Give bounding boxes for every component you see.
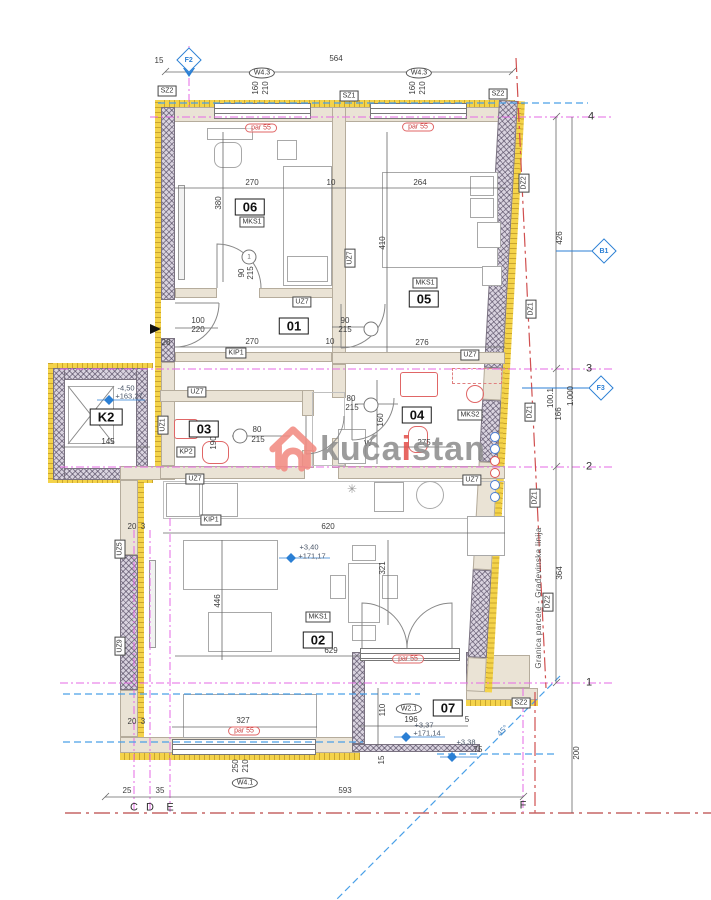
partition <box>175 288 217 298</box>
dimension-label: 629 <box>324 647 337 655</box>
elevator-car <box>68 386 114 444</box>
stove <box>467 516 505 556</box>
k2-wall-right <box>136 368 148 480</box>
room-number: 06 <box>235 199 265 216</box>
elevation-label: +171,17 <box>298 552 325 560</box>
section-marker: F2 <box>176 47 201 72</box>
nightstand-05 <box>477 222 501 248</box>
dimension-label: 220 <box>191 326 204 334</box>
window-tag: W2.1 <box>396 704 422 715</box>
wall-type-tag: MKS1 <box>412 278 437 289</box>
wall-type-tag: MKS1 <box>305 612 330 623</box>
pipe-riser <box>490 432 500 442</box>
door-number <box>364 398 379 413</box>
dimension-label: 90 <box>238 269 246 278</box>
room-number: 07 <box>433 700 463 717</box>
dimension-label: 196 <box>404 716 417 724</box>
insulation-left-lower <box>138 480 144 737</box>
room-number: 01 <box>279 318 309 335</box>
dimension-label: 5 <box>465 716 469 724</box>
window-tag: W4.1 <box>232 778 258 789</box>
dimension-label: 1.000 <box>567 386 575 406</box>
partition-03-top <box>160 390 305 402</box>
radiator-06 <box>178 185 185 280</box>
dimension-label: 200 <box>573 746 581 759</box>
wall-type-tag: SZ2 <box>489 89 508 100</box>
wall-type-tag: DZ1 <box>530 488 541 507</box>
elevation-label: -4,50 <box>117 384 134 392</box>
plan-text: Granica parcele - Građevinska linija <box>535 527 543 668</box>
partition-06-05 <box>332 107 346 354</box>
shower-04 <box>452 368 502 384</box>
plan-text: 45° <box>496 724 510 738</box>
window-top-left <box>214 103 311 119</box>
nightstand-06 <box>277 140 297 160</box>
parapet-label: par 55 <box>402 123 434 132</box>
elevation-label: +3,40 <box>300 543 319 551</box>
fridge <box>166 483 200 517</box>
dimension-label: 210 <box>262 81 270 94</box>
insulation-left2 <box>155 362 161 466</box>
kitchen-cabinet <box>202 483 238 517</box>
dimension-label: 620 <box>321 523 334 531</box>
pipe-riser <box>490 492 500 502</box>
pipe-riser <box>490 480 500 490</box>
pillow-05b <box>470 198 494 218</box>
dimension-label: 564 <box>329 55 342 63</box>
partition-living-top2 <box>338 466 505 479</box>
dimension-label: 446 <box>214 594 222 607</box>
wall-type-tag: MKS2 <box>457 410 482 421</box>
side-table-05 <box>482 266 502 286</box>
desk <box>207 128 253 140</box>
grid-axis-label: 2 <box>586 462 592 473</box>
window-tag: W4.3 <box>406 68 432 79</box>
window-bottom <box>172 739 316 755</box>
terrace-edge <box>352 744 480 752</box>
pillow-06 <box>287 256 328 282</box>
door-number: 1 <box>242 250 257 265</box>
room-number: 02 <box>303 632 333 649</box>
chair <box>214 142 242 168</box>
wall-type-tag: UZ7 <box>345 248 356 267</box>
wall-left-upper <box>161 107 175 300</box>
pipe-riser <box>490 468 500 478</box>
toilet-03 <box>202 441 229 464</box>
dimension-label: 270 <box>245 179 258 187</box>
dimension-label: 250 <box>232 759 240 772</box>
grid-axis-label: E <box>166 803 173 814</box>
dimension-label: 160 <box>409 81 417 94</box>
water-heater <box>466 385 484 403</box>
wall-type-tag: KP2 <box>176 447 195 458</box>
room-number: 05 <box>409 291 439 308</box>
window-top-right <box>370 103 467 119</box>
dimension-label: 276 <box>415 339 428 347</box>
grid-axis-label: 3 <box>586 364 592 375</box>
chair <box>382 575 398 599</box>
ottoman <box>208 612 272 652</box>
dimension-label: 35 <box>156 787 165 795</box>
pipe-riser <box>490 456 500 466</box>
dimension-label: 215 <box>247 266 255 279</box>
k2-wall-top <box>53 368 148 380</box>
room-number: 04 <box>402 407 432 424</box>
wall-type-tag: MKS1 <box>239 217 264 228</box>
radiator-living <box>149 560 156 648</box>
dimension-label: 593 <box>338 787 351 795</box>
sofa-bottom <box>183 694 317 738</box>
wall-type-tag: SZ2 <box>158 86 177 97</box>
wall-left-lower2 <box>120 555 138 690</box>
window-tag: W4.3 <box>249 68 275 79</box>
dimension-label: 215 <box>345 404 358 412</box>
dimension-label: 110 <box>379 704 387 717</box>
grid-axis-label: D <box>146 803 154 814</box>
wall-left-lower3 <box>120 690 138 737</box>
chair <box>352 545 376 561</box>
dimension-label: 364 <box>556 566 564 579</box>
section-marker: B1 <box>591 238 616 263</box>
dimension-label: 15 <box>155 57 164 65</box>
sofa <box>183 540 278 590</box>
insulation-bottom-right <box>466 700 538 706</box>
partition <box>259 288 333 298</box>
dimension-label: 166 <box>555 407 563 420</box>
chair <box>330 575 346 599</box>
wall-type-tag: DZ2 <box>543 592 554 611</box>
dishwasher <box>374 482 404 512</box>
dimension-label: 321 <box>379 561 387 574</box>
partition-hall <box>175 352 332 362</box>
chair <box>352 625 376 641</box>
dimension-label: 210 <box>419 81 427 94</box>
partition-05-04 <box>332 352 505 364</box>
terrace-wall-left <box>352 652 365 744</box>
grid-axis-label: F <box>520 801 527 812</box>
wall-left-upper2 <box>161 338 175 362</box>
dimension-label: 15 <box>378 756 386 765</box>
dimension-label: 80 <box>347 395 356 403</box>
dimension-label: 215 <box>251 436 264 444</box>
dimension-label: 426 <box>556 231 564 244</box>
wall-type-tag: UZ7 <box>292 297 311 308</box>
washbasin-03 <box>174 419 198 439</box>
k2-wall-left <box>53 368 65 480</box>
dimension-label: 380 <box>215 196 223 209</box>
wall-right-seg6 <box>466 657 487 692</box>
dimension-label: 160 <box>252 81 260 94</box>
elevation-label: +171,14 <box>413 729 440 737</box>
grid-axis-label: 4 <box>588 112 594 123</box>
wall-left-mid <box>161 362 175 466</box>
wall-type-tag: DZ1 <box>526 299 537 318</box>
terrace-door-window <box>360 648 460 661</box>
floor-plan-canvas: 1556427010264270102761002202890215802158… <box>0 0 711 900</box>
grid-axis-label: C <box>130 803 138 814</box>
washing-machine <box>338 429 366 464</box>
dining-table <box>348 563 380 623</box>
section-marker: F3 <box>588 375 613 400</box>
kitchen-sink <box>416 481 444 509</box>
dimension-label: 100.1 <box>547 388 555 408</box>
partition-living-top1 <box>160 466 305 479</box>
washbasin-04 <box>400 372 438 397</box>
pipe-riser <box>490 444 500 454</box>
dimension-label: 25 <box>123 787 132 795</box>
wall-left-lower1 <box>120 480 138 555</box>
door-number <box>364 322 379 337</box>
dimension-label: 80 <box>253 426 262 434</box>
dimension-label: 100 <box>191 317 204 325</box>
dimension-label: 270 <box>245 338 258 346</box>
dimension-label: 160 <box>377 413 385 426</box>
toilet-04 <box>408 426 428 453</box>
grid-axis-label: 1 <box>586 678 592 689</box>
elevation-label: +3,37 <box>415 721 434 729</box>
door-number <box>233 429 248 444</box>
pillow-05a <box>470 176 494 196</box>
f2-pointer <box>183 68 195 77</box>
dimension-label: 210 <box>242 759 250 772</box>
wall-type-tag: DZ1 <box>525 402 536 421</box>
